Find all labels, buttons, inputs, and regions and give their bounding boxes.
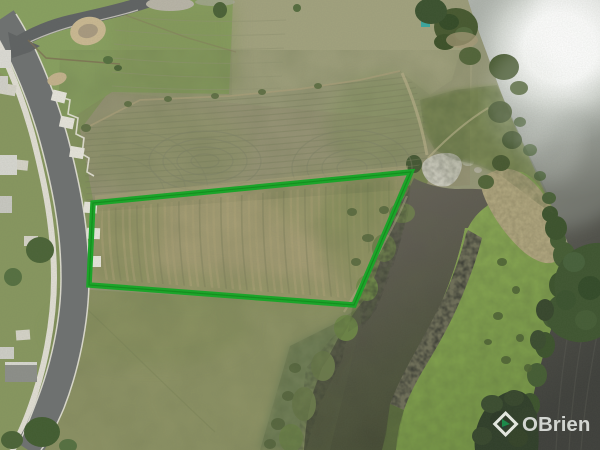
svg-text:OBrien: OBrien bbox=[522, 413, 590, 436]
